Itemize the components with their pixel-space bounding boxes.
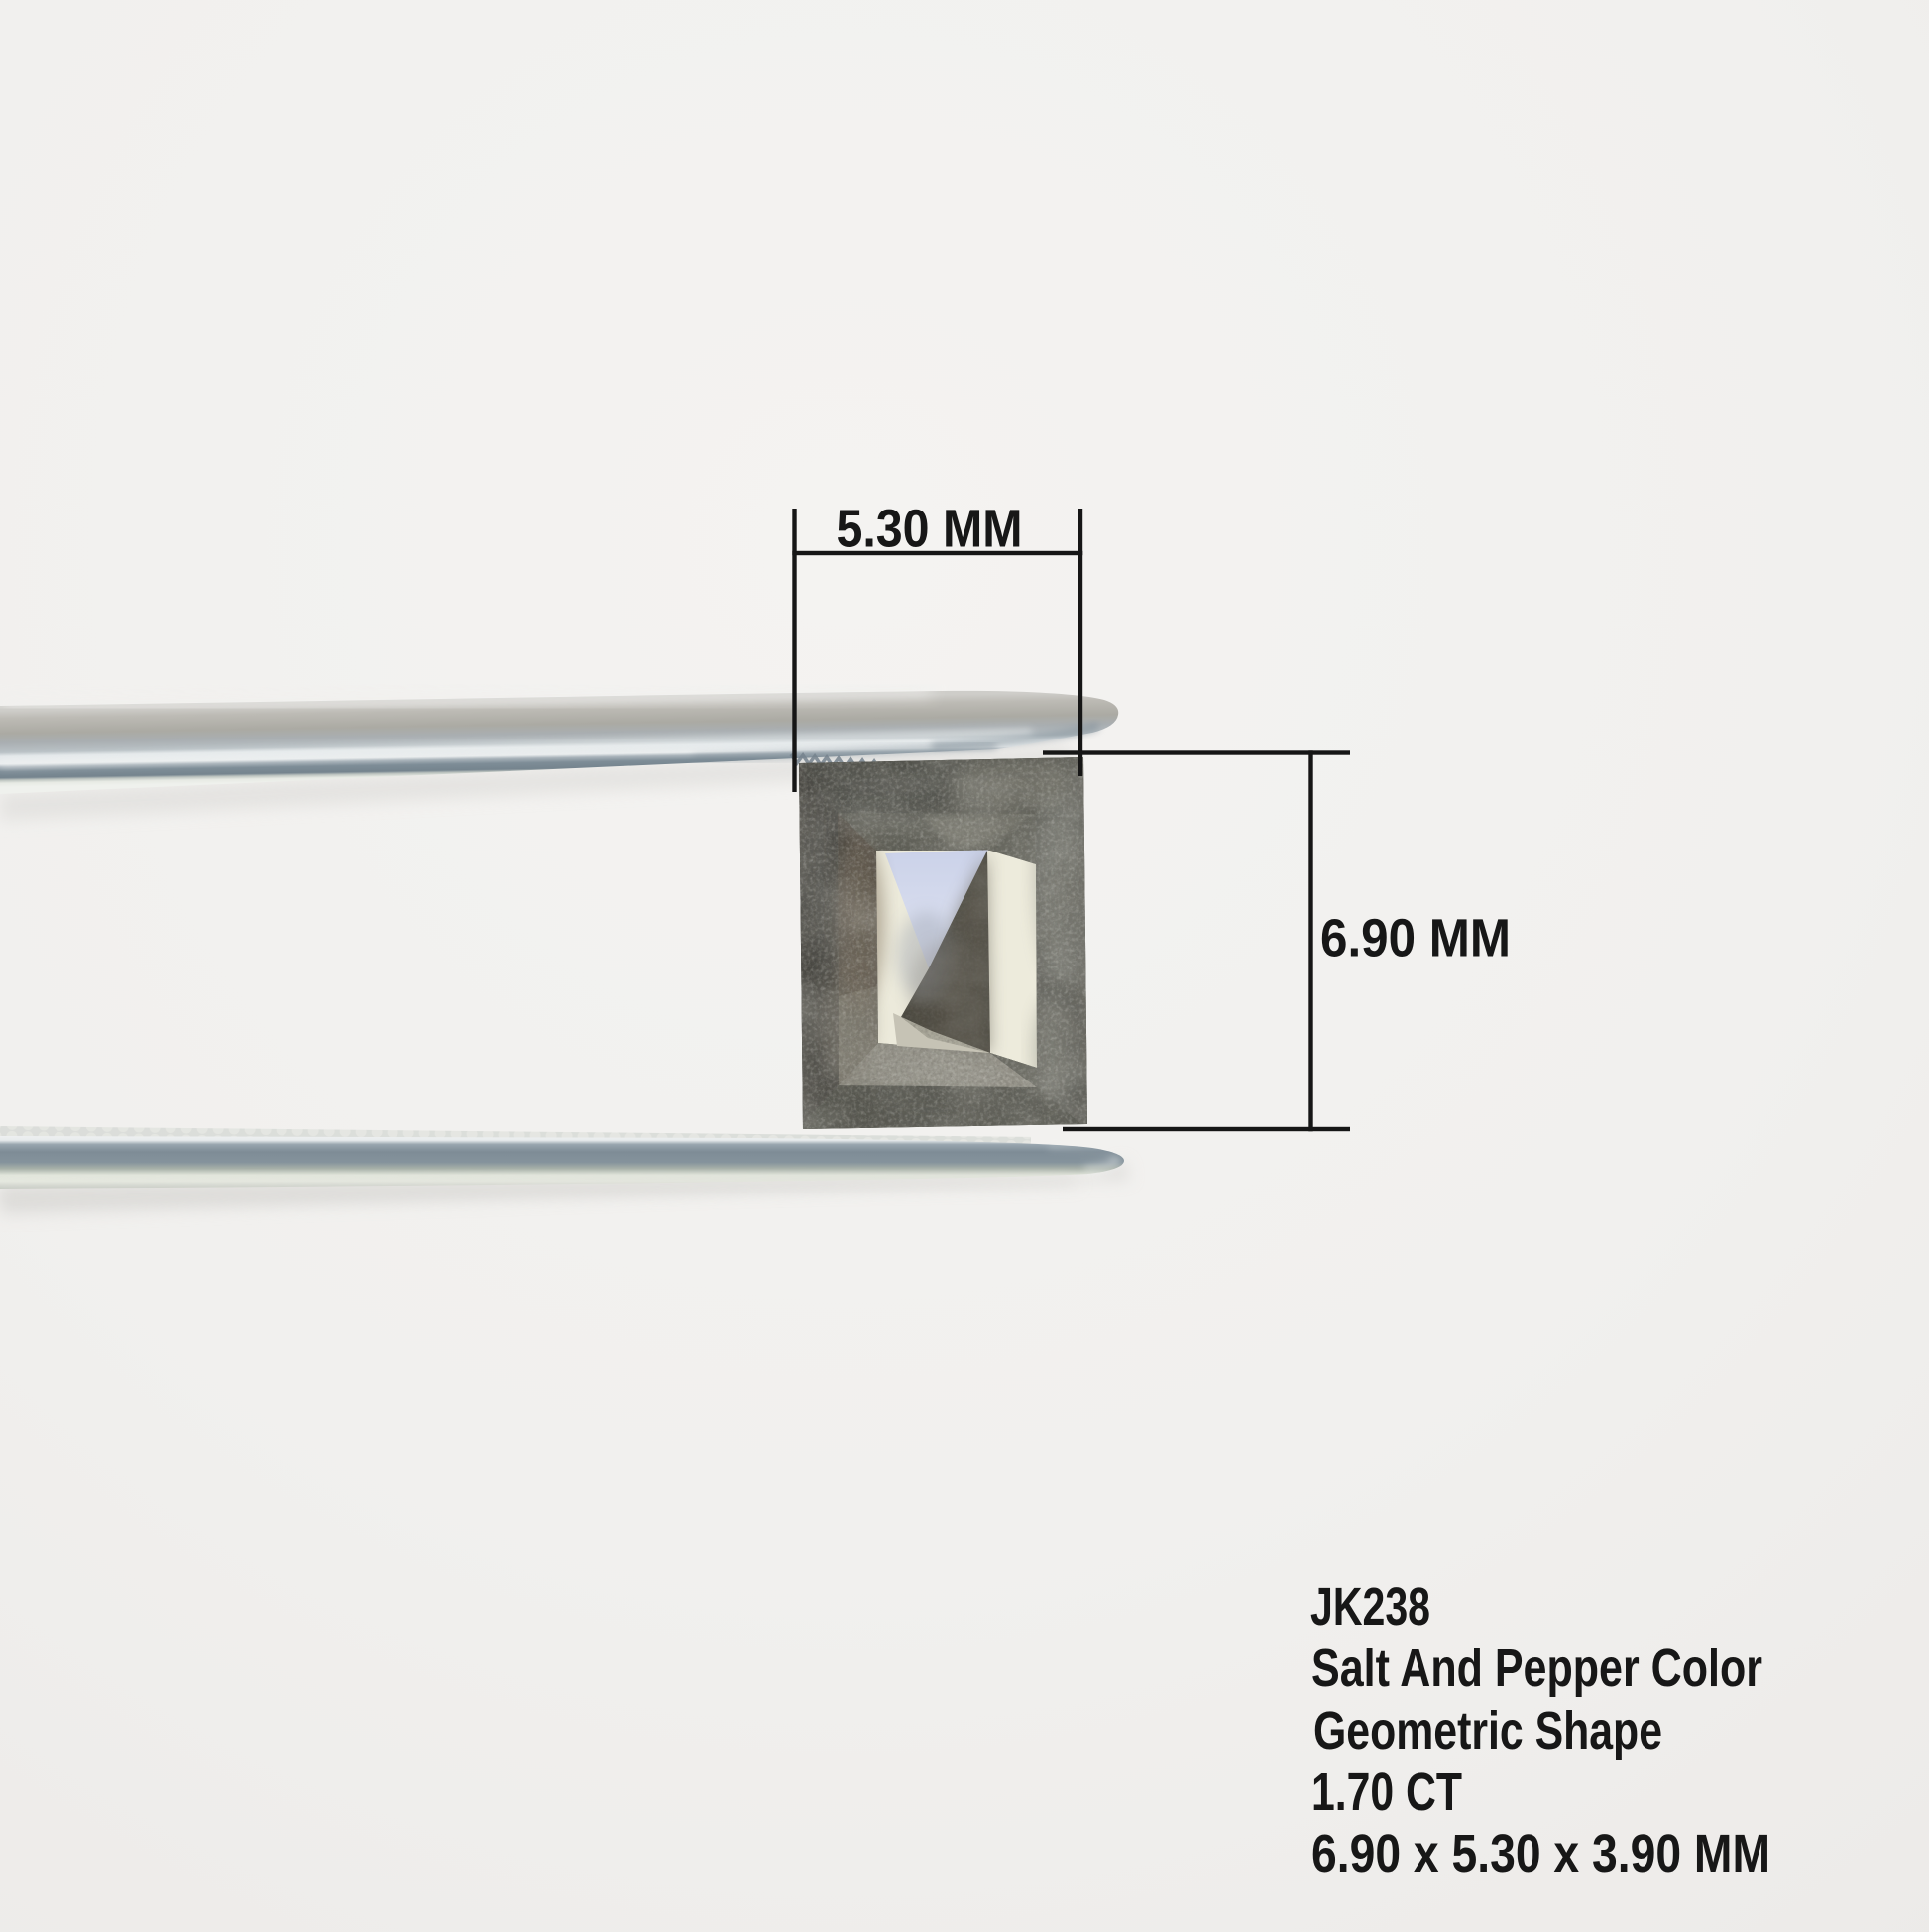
- svg-text:Salt And Pepper Color: Salt And Pepper Color: [1311, 1639, 1762, 1698]
- svg-text:1.70 CT: 1.70 CT: [1311, 1762, 1462, 1822]
- svg-text:5.30 MM: 5.30 MM: [837, 500, 1023, 559]
- svg-text:Geometric Shape: Geometric Shape: [1313, 1701, 1662, 1761]
- svg-text:6.90 x 5.30 x 3.90 MM: 6.90 x 5.30 x 3.90 MM: [1311, 1824, 1770, 1883]
- svg-text:JK238: JK238: [1310, 1577, 1430, 1637]
- svg-text:6.90 MM: 6.90 MM: [1320, 909, 1511, 968]
